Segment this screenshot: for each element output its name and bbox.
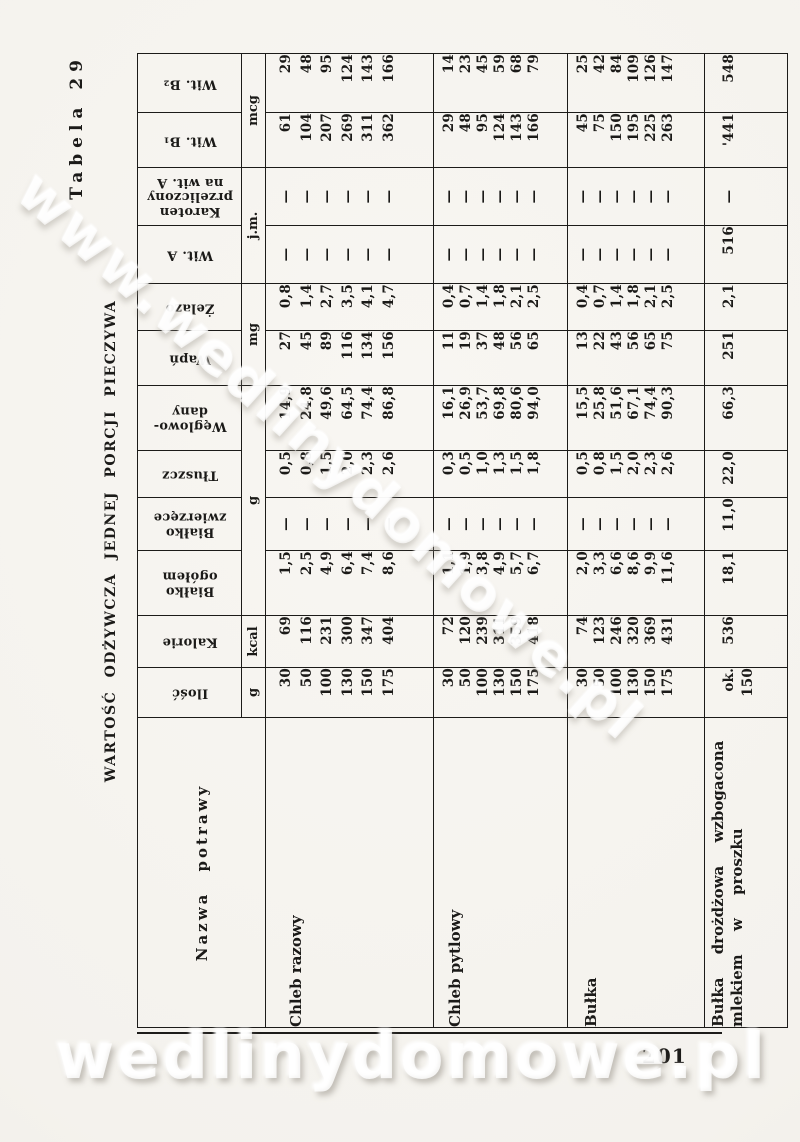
dish-name: Chleb razowy [266,718,434,1028]
col-header-bialko-ogolem: Białko ogółem [162,569,217,598]
cell-tluszcz: 0,5 0,8 1,5 2,0 2,3 2,6 [568,451,705,498]
dish-name: Bułka drożdżowa wzbogacona mlekiem w pro… [705,718,788,1028]
col-header-wit-b2-cell: Wit. B₂ [138,54,242,113]
cell-zelazo: 0,4 0,7 1,4 1,8 2,1 2,5 [434,284,568,331]
titles-block: Tabela 29 WARTOŚĆ ODŻYWCZA JEDNEJ PORCJI… [65,54,137,1028]
cell-wit-a: — — — — — — [434,226,568,284]
cell-wit-b1: 45 75 150 195 225 263 [568,113,705,168]
cell-wit-b1: '441 [705,113,788,168]
col-header-weglowodany-cell: Węglowo- dany [138,386,242,451]
cell-weglowodany: 15,5 25,8 51,6 67,1 74,4 90,3 [568,386,705,451]
cell-wapn: 251 [705,331,788,386]
cell-wit-a: — — — — — — [568,226,705,284]
cell-ilosc: 30 50 100 130 150 175 [434,668,568,718]
col-header-wit-a-cell: Wit. A [138,226,242,284]
cell-weglowodany: 16,1 26,9 53,7 69,8 80,6 94,0 [434,386,568,451]
cell-ilosc: 30 50 100 130 150 175 [266,668,434,718]
nutrition-table: Nazwa potrawy Ilość Kalorie Białko ogółe… [137,53,788,1028]
rotated-table-area: Tabela 29 WARTOŚĆ ODŻYWCZA JEDNEJ PORCJI… [65,54,722,1028]
col-header-bialko-zwierzece: Białko zwierzęce [153,510,226,539]
cell-bialko-ogolem: 1,5 2,5 4,9 6,4 7,4 8,6 [266,551,434,616]
col-header-bialko-ogolem-cell: Białko ogółem [138,551,242,616]
col-header-karoten-cell: Karoten przeliczony na wit. A [138,168,242,226]
cell-bialko-ogolem: 2,0 3,3 6,6 8,6 9,9 11,6 [568,551,705,616]
col-header-tluszcz-cell: Tłuszcz [138,451,242,498]
cell-tluszcz: 22,0 [705,451,788,498]
cell-wapn: 11 19 37 48 56 65 [434,331,568,386]
cell-weglowodany: 14,9 24,8 49,6 64,5 74,4 86,8 [266,386,434,451]
cell-kalorie: 536 [705,616,788,668]
header-row: Nazwa potrawy Ilość Kalorie Białko ogółe… [138,54,242,1028]
row-group-chleb-pytlowy: Chleb pytlowy 30 50 100 130 150 175 72 1… [434,54,568,1028]
dish-name: Chleb pytlowy [434,718,568,1028]
cell-wit-a: 516 [705,226,788,284]
col-header-wapn-cell: Wapń [138,331,242,386]
col-header-ilosc-cell: Ilość [138,668,242,718]
cell-bialko-ogolem: 1,1 1,9 3,8 4,9 5,7 6,7 [434,551,568,616]
unit-kalorie: kcal [242,616,266,668]
cell-wit-a: — — — — — — [266,226,434,284]
unit-wapn-zelazo: mg [242,284,266,386]
cell-bialko-zwierzece: — — — — — — [434,498,568,551]
cell-bialko-zwierzece: 11,0 [705,498,788,551]
cell-wit-b2: 548 [705,54,788,113]
col-header-wapn: Wapń [169,351,211,366]
col-header-bialko-zwierzece-cell: Białko zwierzęce [138,498,242,551]
cell-zelazo: 0,4 0,7 1,4 1,8 2,1 2,5 [568,284,705,331]
cell-ilosc: 30 50 100 130 150 175 [568,668,705,718]
cell-bialko-zwierzece: — — — — — — [266,498,434,551]
cell-wit-b2: 14 23 45 59 68 79 [434,54,568,113]
cell-kalorie: 69 116 231 300 347 404 [266,616,434,668]
table-end-double-rule [137,1032,722,1034]
cell-kalorie: 72 120 239 311 359 418 [434,616,568,668]
col-header-ilosc: Ilość [171,685,207,700]
cell-karoten: — [705,168,788,226]
col-header-weglowodany: Węglowo- dany [153,404,226,433]
cell-ilosc: ok. 150 [705,668,788,718]
cell-kalorie: 74 123 246 320 369 431 [568,616,705,668]
col-header-wit-b1: Wit. B₁ [163,133,216,148]
table-title: WARTOŚĆ ODŻYWCZA JEDNEJ PORCJI PIECZYWA [103,54,119,1028]
col-header-wit-b2: Wit. B₂ [163,76,216,91]
table-wrapper: Nazwa potrawy Ilość Kalorie Białko ogółe… [137,54,788,1028]
col-header-karoten: Karoten przeliczony na wit. A [147,175,233,219]
cell-karoten: — — — — — — [434,168,568,226]
unit-wit-b: mcg [242,54,266,168]
row-group-bulka-drozdzowa: Bułka drożdżowa wzbogacona mlekiem w pro… [705,54,788,1028]
col-header-zelazo: Żelazo [165,300,214,315]
page-number: 201 [642,1044,687,1068]
col-header-nazwa-potrawy: Nazwa potrawy [138,718,266,1028]
cell-zelazo: 2,1 [705,284,788,331]
cell-wapn: 13 22 43 56 65 75 [568,331,705,386]
unit-bialko-weglowodany: g [242,386,266,616]
col-header-kalorie-cell: Kalorie [138,616,242,668]
unit-wit-a-karoten: j.m. [242,168,266,284]
cell-weglowodany: 66,3 [705,386,788,451]
cell-bialko-ogolem: 18,1 [705,551,788,616]
unit-ilosc: g [242,668,266,718]
col-header-wit-b1-cell: Wit. B₁ [138,113,242,168]
scanned-book-page: www.wedlinydomowe.pl www.wedlinydomowe.p… [0,0,800,1142]
col-header-wit-a: Wit. A [166,247,212,262]
cell-wit-b1: 29 48 95 124 143 166 [434,113,568,168]
col-header-tluszcz: Tłuszcz [161,467,217,482]
cell-tluszcz: 0,3 0,5 1,0 1,3 1,5 1,8 [434,451,568,498]
cell-wit-b2: 29 48 95 124 143 166 [266,54,434,113]
col-header-zelazo-cell: Żelazo [138,284,242,331]
table-number-label: Tabela 29 [67,54,87,200]
cell-zelazo: 0,8 1,4 2,7 3,5 4,1 4,7 [266,284,434,331]
cell-tluszcz: 0,5 0,8 1,5 2,0 2,3 2,6 [266,451,434,498]
cell-bialko-zwierzece: — — — — — — [568,498,705,551]
dish-name: Bułka [568,718,705,1028]
cell-wit-b1: 61 104 207 269 311 362 [266,113,434,168]
row-group-bulka: Bułka 30 50 100 130 150 175 74 123 246 3… [568,54,705,1028]
row-group-chleb-razowy: Chleb razowy 30 50 100 130 150 175 69 11… [266,54,434,1028]
cell-karoten: — — — — — — [568,168,705,226]
col-header-kalorie: Kalorie [162,634,218,649]
cell-karoten: — — — — — — [266,168,434,226]
cell-wit-b2: 25 42 84 109 126 147 [568,54,705,113]
cell-wapn: 27 45 89 116 134 156 [266,331,434,386]
